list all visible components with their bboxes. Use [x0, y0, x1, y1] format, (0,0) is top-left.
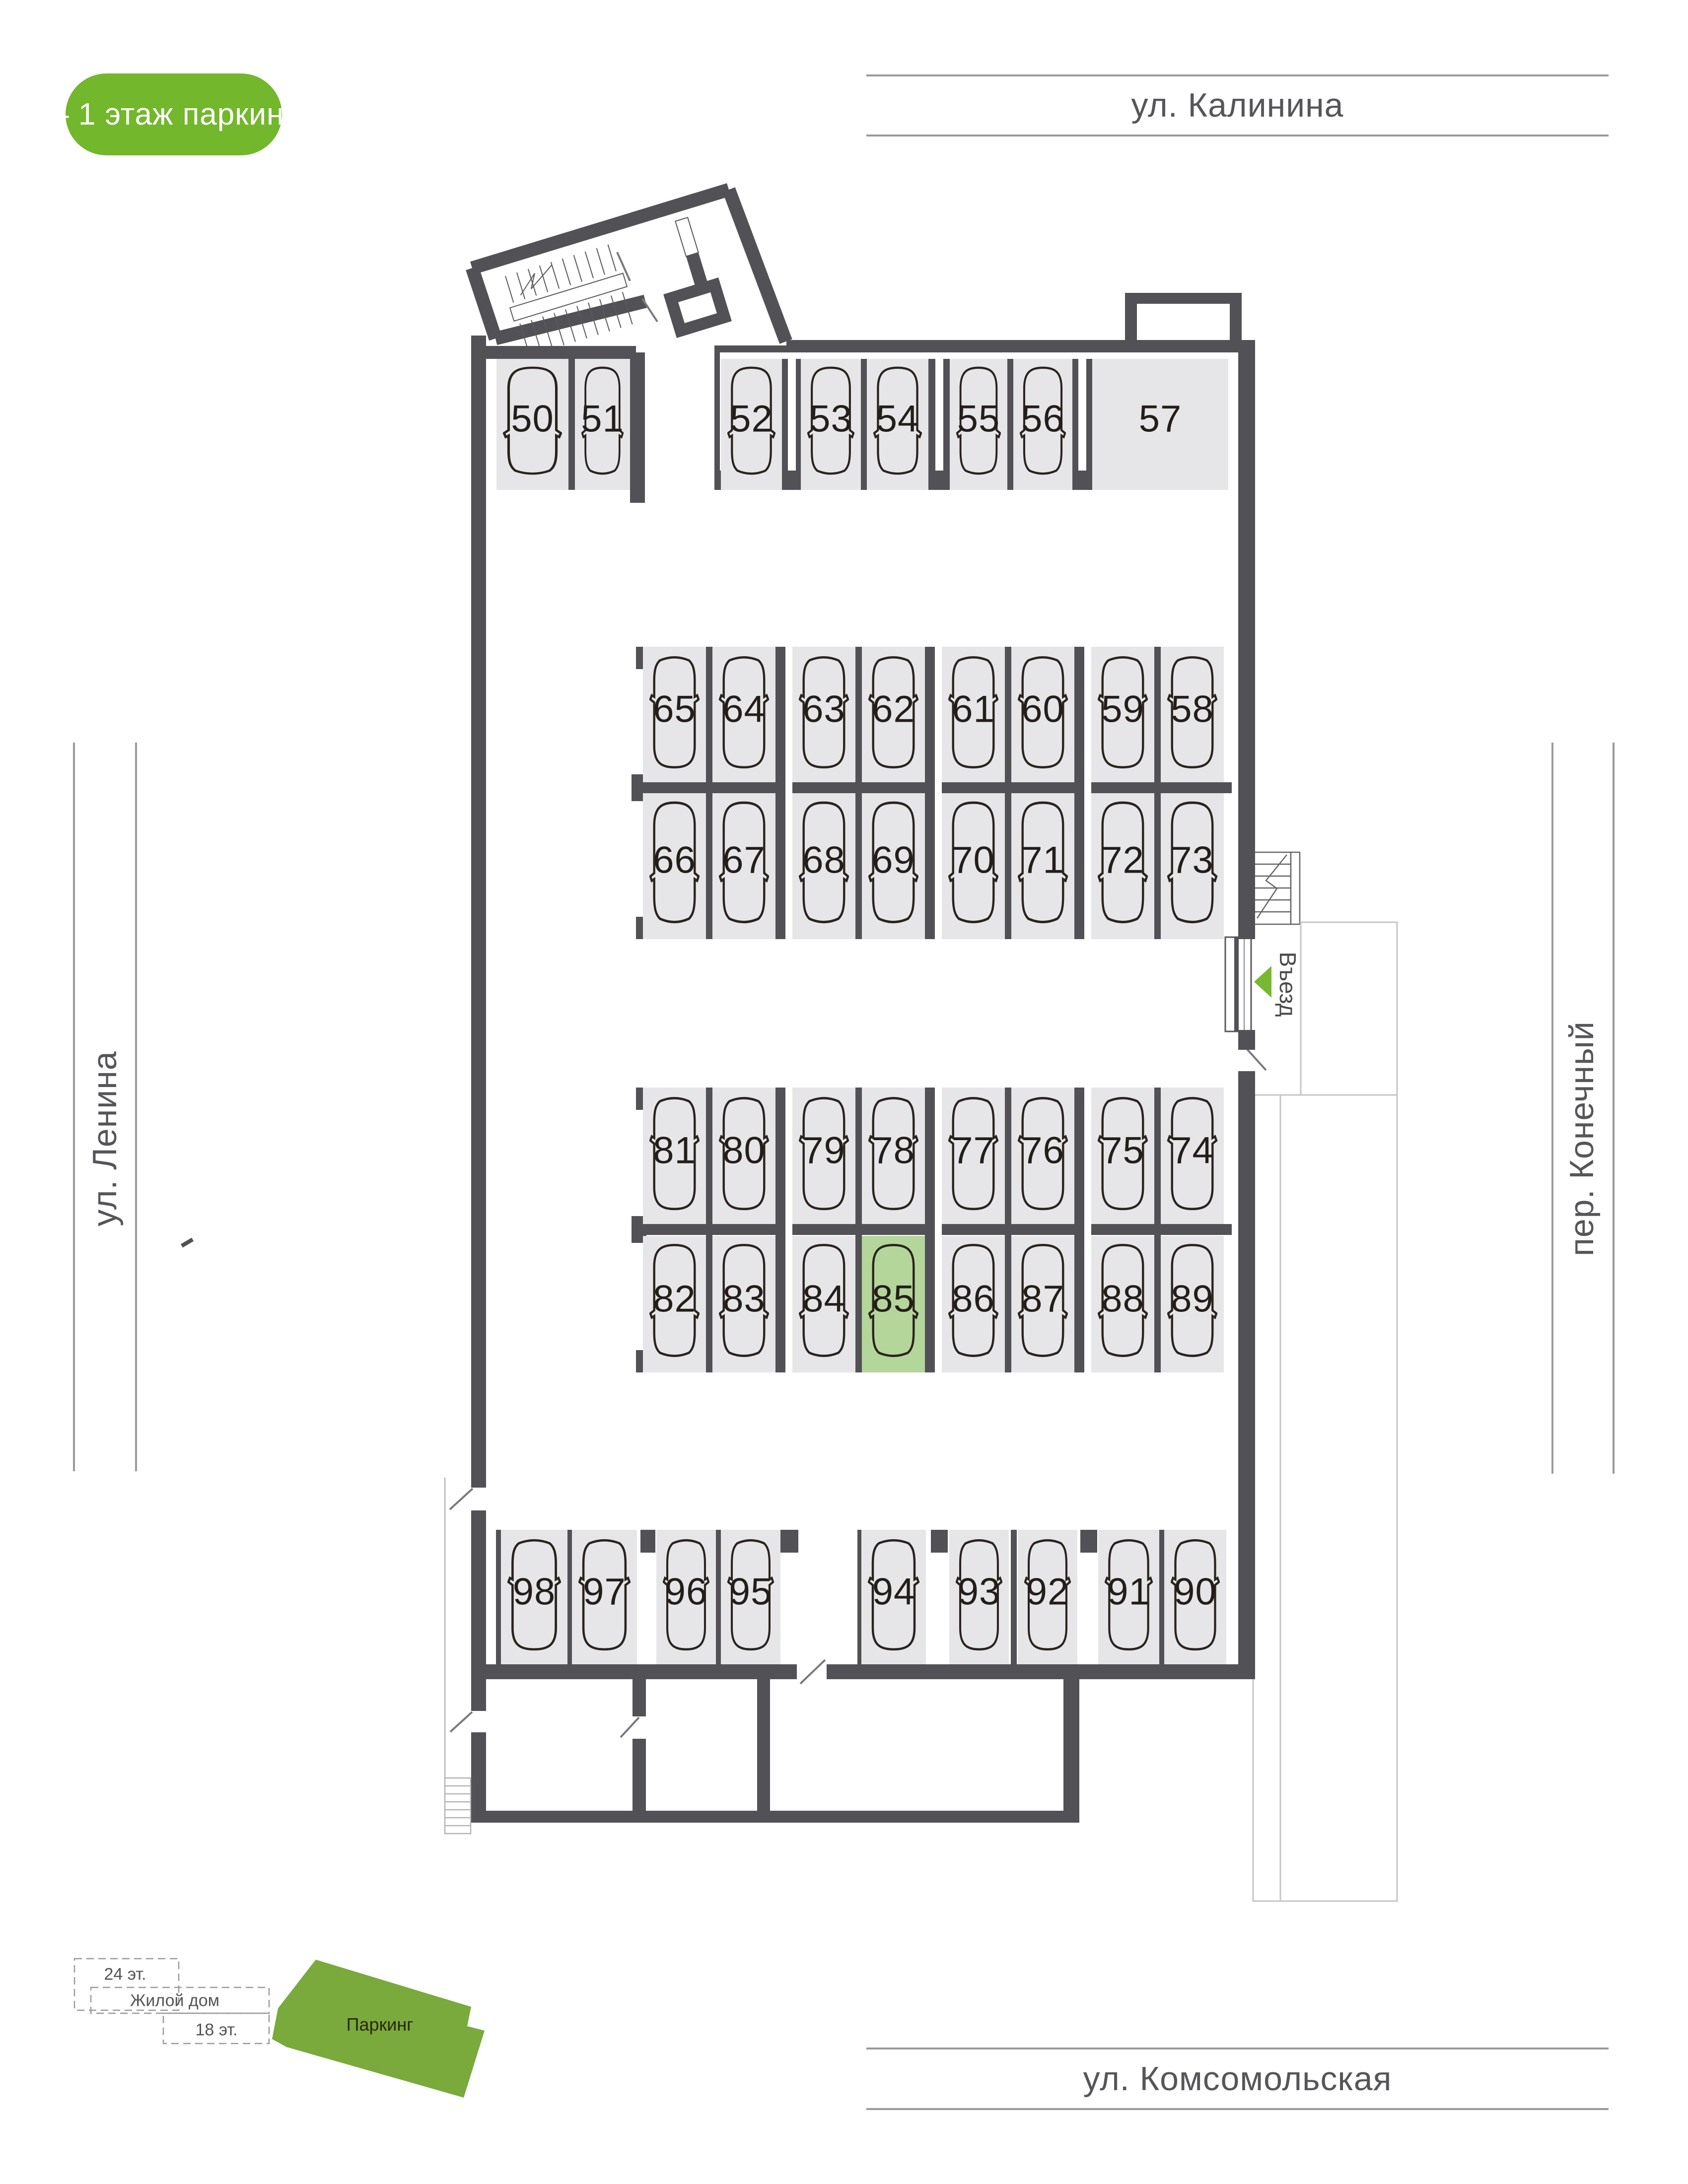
- parking-spot-98[interactable]: 98: [501, 1530, 567, 1664]
- spot-number: 56: [1013, 398, 1072, 441]
- spot-number: 88: [1091, 1277, 1154, 1320]
- wall-segment: [471, 1732, 486, 1823]
- wall-segment: [640, 1530, 655, 1553]
- parking-spot-67[interactable]: 67: [712, 793, 775, 939]
- parking-spot-90[interactable]: 90: [1164, 1530, 1226, 1664]
- wall-segment: [471, 1664, 797, 1679]
- parking-spot-89[interactable]: 89: [1161, 1236, 1224, 1372]
- spot-number: 61: [942, 687, 1005, 731]
- spot-number: 94: [861, 1570, 926, 1613]
- parking-spot-52[interactable]: 52: [721, 359, 782, 490]
- spot-number: 71: [1011, 839, 1074, 882]
- parking-spot-57[interactable]: 57: [1092, 359, 1228, 490]
- parking-spot-59[interactable]: 59: [1091, 647, 1154, 782]
- spot-number: 96: [656, 1570, 716, 1613]
- wall-segment: [1074, 647, 1084, 939]
- parking-spot-69[interactable]: 69: [862, 793, 925, 939]
- parking-spot-53[interactable]: 53: [801, 359, 861, 490]
- parking-spot-70[interactable]: 70: [942, 793, 1005, 939]
- wall-segment: [714, 352, 720, 490]
- spot-number: 81: [643, 1129, 706, 1172]
- parking-spot-96[interactable]: 96: [656, 1530, 716, 1664]
- wall-segment: [636, 1088, 643, 1110]
- wall-segment: [636, 647, 643, 669]
- parking-spot-81[interactable]: 81: [643, 1088, 706, 1224]
- spot-number: 78: [862, 1129, 925, 1172]
- parking-spot-56[interactable]: 56: [1013, 359, 1072, 490]
- spot-number: 86: [942, 1277, 1005, 1320]
- parking-spot-84[interactable]: 84: [792, 1236, 855, 1372]
- wall-segment: [1154, 647, 1161, 939]
- spot-number: 55: [950, 398, 1007, 441]
- spot-number: 87: [1011, 1277, 1074, 1320]
- spot-number: 77: [942, 1129, 1005, 1172]
- wall-segment: [1238, 1030, 1255, 1050]
- spot-number: 85: [862, 1277, 925, 1320]
- parking-spot-92[interactable]: 92: [1018, 1530, 1077, 1664]
- stairwell-topleft-icon: [472, 190, 786, 341]
- pillar-slot: [788, 359, 796, 471]
- entrance-gate-icon: [1225, 937, 1251, 1031]
- wall-segment: [775, 647, 785, 939]
- wall-segment: [827, 1664, 1255, 1679]
- parking-spot-85[interactable]: 85: [862, 1236, 925, 1372]
- wall-segment: [1005, 647, 1011, 939]
- parking-spot-63[interactable]: 63: [792, 647, 855, 782]
- parking-spot-68[interactable]: 68: [792, 793, 855, 939]
- wall-segment: [636, 1350, 643, 1372]
- spot-number: 70: [942, 839, 1005, 882]
- parking-spot-83[interactable]: 83: [712, 1236, 775, 1372]
- spot-number: 59: [1091, 687, 1154, 731]
- parking-spot-71[interactable]: 71: [1011, 793, 1074, 939]
- parking-spot-76[interactable]: 76: [1011, 1088, 1074, 1224]
- pillar-slot: [1084, 669, 1091, 917]
- spot-number: 63: [792, 687, 855, 731]
- wall-segment: [471, 336, 486, 1488]
- spot-number: 74: [1161, 1129, 1224, 1172]
- spot-number: 95: [721, 1570, 780, 1613]
- spot-number: 84: [792, 1277, 855, 1320]
- spot-number: 80: [712, 1129, 775, 1172]
- spot-number: 69: [862, 839, 925, 882]
- parking-spot-97[interactable]: 97: [572, 1530, 637, 1664]
- parking-spot-62[interactable]: 62: [862, 647, 925, 782]
- pillar-slot: [1084, 1110, 1091, 1350]
- spot-number: 58: [1161, 687, 1224, 731]
- wall-segment: [786, 340, 1254, 352]
- parking-spot-65[interactable]: 65: [643, 647, 706, 782]
- pillar-slot: [935, 1110, 942, 1350]
- parking-spot-87[interactable]: 87: [1011, 1236, 1074, 1372]
- wall-segment: [471, 1510, 486, 1679]
- wall-segment: [471, 346, 636, 359]
- spot-number: 92: [1018, 1570, 1077, 1613]
- wall-segment: [861, 359, 867, 490]
- wall-segment: [931, 1530, 948, 1553]
- parking-spot-91[interactable]: 91: [1098, 1530, 1159, 1664]
- spot-number: 66: [643, 839, 706, 882]
- wall-segment: [855, 647, 862, 939]
- parking-spot-55[interactable]: 55: [950, 359, 1007, 490]
- dash-mark: [182, 1239, 193, 1246]
- wall-segment: [925, 647, 935, 939]
- spot-number: 53: [801, 398, 861, 441]
- spot-number: 52: [721, 398, 782, 441]
- wall-segment: [633, 1739, 646, 1811]
- wall-segment: [1080, 1530, 1097, 1553]
- parking-spot-66[interactable]: 66: [643, 793, 706, 939]
- parking-spot-75[interactable]: 75: [1091, 1088, 1154, 1224]
- parking-spot-64[interactable]: 64: [712, 647, 775, 782]
- minimap-label-house: Жилой дом: [130, 1991, 219, 2011]
- wall-segment: [1238, 340, 1255, 939]
- parking-spot-93[interactable]: 93: [949, 1530, 1009, 1664]
- wall-segment: [636, 917, 643, 939]
- wall-segment: [775, 1088, 785, 1372]
- spot-number: 51: [575, 398, 630, 441]
- spot-number: 62: [862, 687, 925, 731]
- spot-number: 67: [712, 839, 775, 882]
- parking-spot-72[interactable]: 72: [1091, 793, 1154, 939]
- spot-number: 97: [572, 1570, 637, 1613]
- spot-number: 82: [643, 1277, 706, 1320]
- wall-segment: [757, 1679, 770, 1811]
- minimap-label-18: 18 эт.: [195, 2021, 237, 2040]
- wall-segment: [714, 345, 786, 352]
- wall-segment: [925, 1088, 935, 1372]
- spot-number: 75: [1091, 1129, 1154, 1172]
- wall-segment: [1125, 293, 1242, 304]
- utility-room-icon: [671, 285, 724, 331]
- wall-segment: [568, 359, 575, 490]
- minimap-label-24: 24 эт.: [104, 1965, 146, 1984]
- spot-number: 50: [496, 398, 568, 441]
- wall-segment: [1238, 1071, 1255, 1679]
- stairwell-east-icon: [1253, 852, 1300, 924]
- wall-segment: [1063, 1679, 1079, 1823]
- parking-spot-54[interactable]: 54: [867, 359, 928, 490]
- wall-segment: [855, 1088, 862, 1372]
- pillar-slot: [785, 1110, 792, 1350]
- wall-segment: [1154, 1088, 1161, 1372]
- outside-stairs-icon: [445, 1478, 471, 1834]
- wall-segment: [706, 1088, 712, 1372]
- spot-number: 89: [1161, 1277, 1224, 1320]
- parking-spot-79[interactable]: 79: [792, 1088, 855, 1224]
- spot-number: 72: [1091, 839, 1154, 882]
- spot-number: 68: [792, 839, 855, 882]
- wall-segment: [1125, 293, 1137, 342]
- parking-spot-51[interactable]: 51: [575, 359, 630, 490]
- pillar-slot: [785, 669, 792, 917]
- parking-spot-61[interactable]: 61: [942, 647, 1005, 782]
- parking-spot-88[interactable]: 88: [1091, 1236, 1154, 1372]
- parking-spot-82[interactable]: 82: [643, 1236, 706, 1372]
- wall-segment: [633, 1679, 646, 1716]
- wall-segment: [1005, 1088, 1011, 1372]
- minimap-label-parking: Паркинг: [347, 2014, 414, 2035]
- spot-number: 57: [1092, 398, 1228, 441]
- wall-segment: [706, 647, 712, 939]
- parking-floor-plan: – 1 этаж паркинг ул. Калинина ул. Комсом…: [0, 0, 1688, 2184]
- spot-number: 93: [949, 1570, 1009, 1613]
- spot-number: 83: [712, 1277, 775, 1320]
- parking-spot-73[interactable]: 73: [1161, 793, 1224, 939]
- wall-segment: [471, 1811, 1079, 1823]
- spot-number: 91: [1098, 1570, 1159, 1613]
- parking-spot-74[interactable]: 74: [1161, 1088, 1224, 1224]
- wall-segment: [1074, 1088, 1084, 1372]
- parking-spot-80[interactable]: 80: [712, 1088, 775, 1224]
- parking-spot-95[interactable]: 95: [721, 1530, 780, 1664]
- spot-number: 60: [1011, 687, 1074, 731]
- parking-spot-77[interactable]: 77: [942, 1088, 1005, 1224]
- wall-segment: [1007, 359, 1013, 490]
- wall-segment: [1011, 1530, 1017, 1664]
- pillar-slot: [935, 359, 943, 471]
- spot-number: 65: [643, 687, 706, 731]
- parking-spot-60[interactable]: 60: [1011, 647, 1074, 782]
- parking-spot-94[interactable]: 94: [861, 1530, 926, 1664]
- parking-spot-86[interactable]: 86: [942, 1236, 1005, 1372]
- spot-number: 64: [712, 687, 775, 731]
- spot-number: 90: [1164, 1570, 1226, 1613]
- parking-spot-50[interactable]: 50: [496, 359, 568, 490]
- wall-segment: [1230, 293, 1242, 342]
- entrance-label: Въезд: [1258, 935, 1318, 1034]
- spot-number: 54: [867, 398, 928, 441]
- wall-segment: [780, 1530, 798, 1553]
- spot-number: 76: [1011, 1129, 1074, 1172]
- pillar-slot: [1078, 359, 1086, 471]
- parking-spot-78[interactable]: 78: [862, 1088, 925, 1224]
- spot-number: 79: [792, 1129, 855, 1172]
- pillar-slot: [935, 669, 942, 917]
- ramp-outline: [1253, 922, 1397, 1901]
- spot-number: 73: [1161, 839, 1224, 882]
- parking-spot-58[interactable]: 58: [1161, 647, 1224, 782]
- spot-number: 98: [501, 1570, 567, 1613]
- wall-segment: [630, 352, 645, 503]
- wall-segment: [471, 1679, 486, 1711]
